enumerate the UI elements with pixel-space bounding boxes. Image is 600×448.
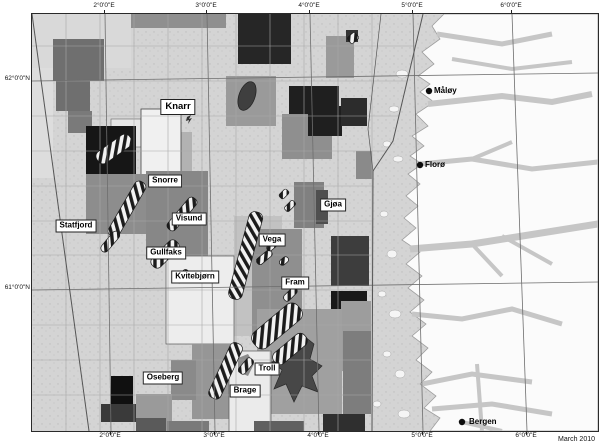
field-label-vega: Vega bbox=[259, 234, 286, 247]
norway-land bbox=[402, 14, 598, 431]
axis-label-left-61n: 61°0'0"N bbox=[2, 284, 30, 291]
axis-label-top-6e: 6°0'0"E bbox=[500, 2, 521, 9]
field-label-fram: Fram bbox=[281, 277, 309, 290]
field-label-troll: Troll bbox=[255, 363, 280, 376]
city-label-floro: Florø bbox=[425, 160, 445, 169]
city-label-bergen: Bergen bbox=[469, 417, 497, 426]
field-label-visund: Visund bbox=[172, 213, 207, 226]
maloy-city-dot bbox=[426, 88, 432, 94]
field-label-gjoa: Gjøa bbox=[320, 199, 346, 212]
map-page: 2°0'0"E 3°0'0"E 4°0'0"E 5°0'0"E 6°0'0"E … bbox=[0, 0, 600, 448]
axis-label-top-2e: 2°0'0"E bbox=[93, 2, 114, 9]
field-label-statfjord: Statfjord bbox=[56, 220, 97, 233]
axis-label-top-4e: 4°0'0"E bbox=[298, 2, 319, 9]
bergen-city-dot bbox=[459, 419, 465, 425]
map-graphics bbox=[32, 14, 598, 431]
field-label-oseberg: Oseberg bbox=[143, 372, 183, 385]
axis-label-top-3e: 3°0'0"E bbox=[195, 2, 216, 9]
map-date-note: March 2010 bbox=[558, 436, 595, 443]
field-label-snorre: Snorre bbox=[148, 175, 182, 188]
map-frame: Knarr Snorre Statfjord Visund Gullfaks K… bbox=[31, 13, 599, 432]
floro-city-dot bbox=[417, 162, 423, 168]
axis-label-left-62n: 62°0'0"N bbox=[2, 75, 30, 82]
field-label-gullfaks: Gullfaks bbox=[146, 247, 186, 260]
field-label-kvitebjorn: Kvitebjørn bbox=[171, 271, 219, 284]
city-label-maloy: Måløy bbox=[434, 86, 457, 95]
axis-label-top-5e: 5°0'0"E bbox=[401, 2, 422, 9]
field-label-brage: Brage bbox=[230, 385, 261, 398]
field-label-knarr: Knarr bbox=[160, 99, 195, 115]
